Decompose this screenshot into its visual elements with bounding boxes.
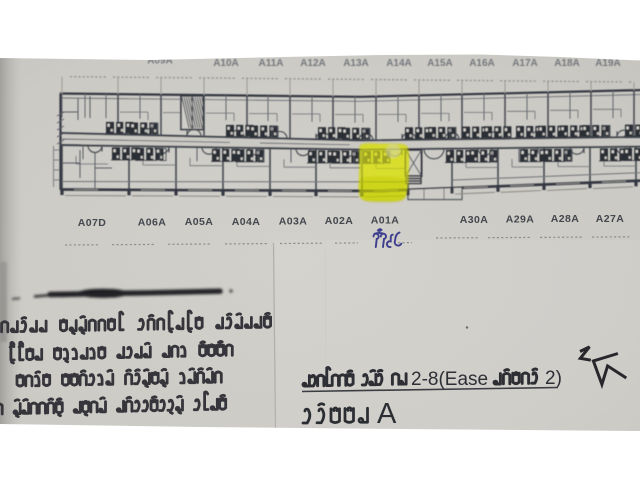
svg-text:A05A: A05A: [185, 216, 213, 228]
svg-text:A: A: [377, 398, 397, 430]
svg-text:2-8(Ease: 2-8(Ease: [411, 369, 488, 390]
svg-text:A14A: A14A: [386, 58, 412, 69]
svg-text:A04A: A04A: [232, 216, 260, 228]
svg-text:A17A: A17A: [512, 58, 538, 69]
svg-text:A28A: A28A: [551, 213, 579, 225]
svg-text:A13A: A13A: [343, 58, 369, 69]
svg-text:A16A: A16A: [469, 58, 495, 69]
svg-text:A06A: A06A: [138, 217, 166, 229]
svg-text:2): 2): [545, 368, 562, 389]
svg-text:A30A: A30A: [460, 214, 488, 226]
svg-text:A07D: A07D: [78, 217, 106, 229]
svg-text:A12A: A12A: [300, 58, 326, 69]
svg-text:A02A: A02A: [325, 215, 353, 227]
svg-text:A01A: A01A: [371, 215, 399, 227]
svg-text:A29A: A29A: [506, 214, 534, 226]
svg-text:A11A: A11A: [258, 58, 283, 69]
svg-text:A18A: A18A: [554, 58, 580, 69]
svg-text:A27A: A27A: [596, 213, 624, 225]
svg-text:A03A: A03A: [279, 215, 307, 227]
svg-text:A15A: A15A: [427, 58, 453, 69]
svg-text:A10A: A10A: [213, 58, 239, 69]
